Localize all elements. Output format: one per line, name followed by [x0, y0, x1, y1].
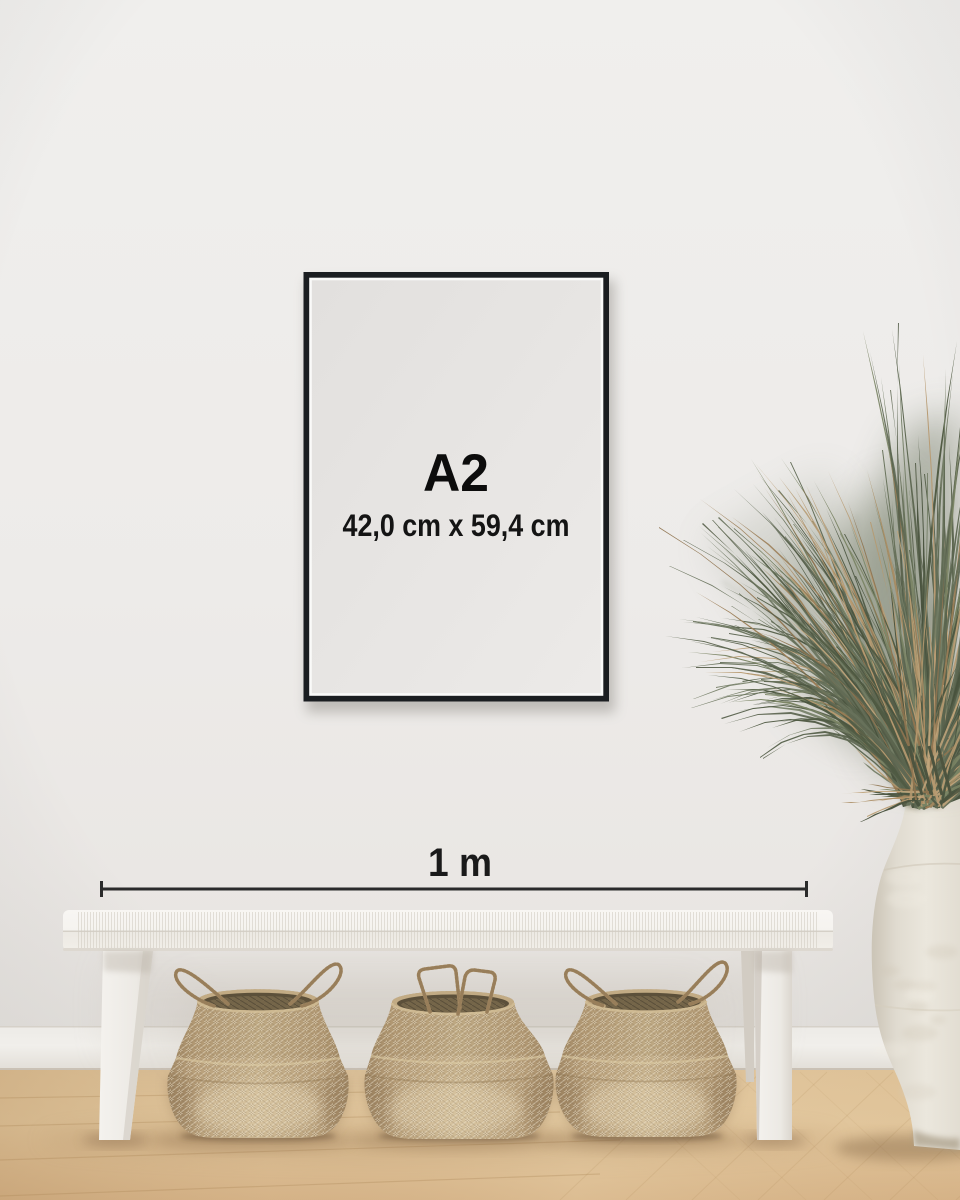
svg-text:A2: A2: [423, 444, 489, 503]
svg-text:42,0 cm x 59,4 cm: 42,0 cm x 59,4 cm: [343, 507, 570, 543]
svg-text:1 m: 1 m: [428, 841, 492, 885]
